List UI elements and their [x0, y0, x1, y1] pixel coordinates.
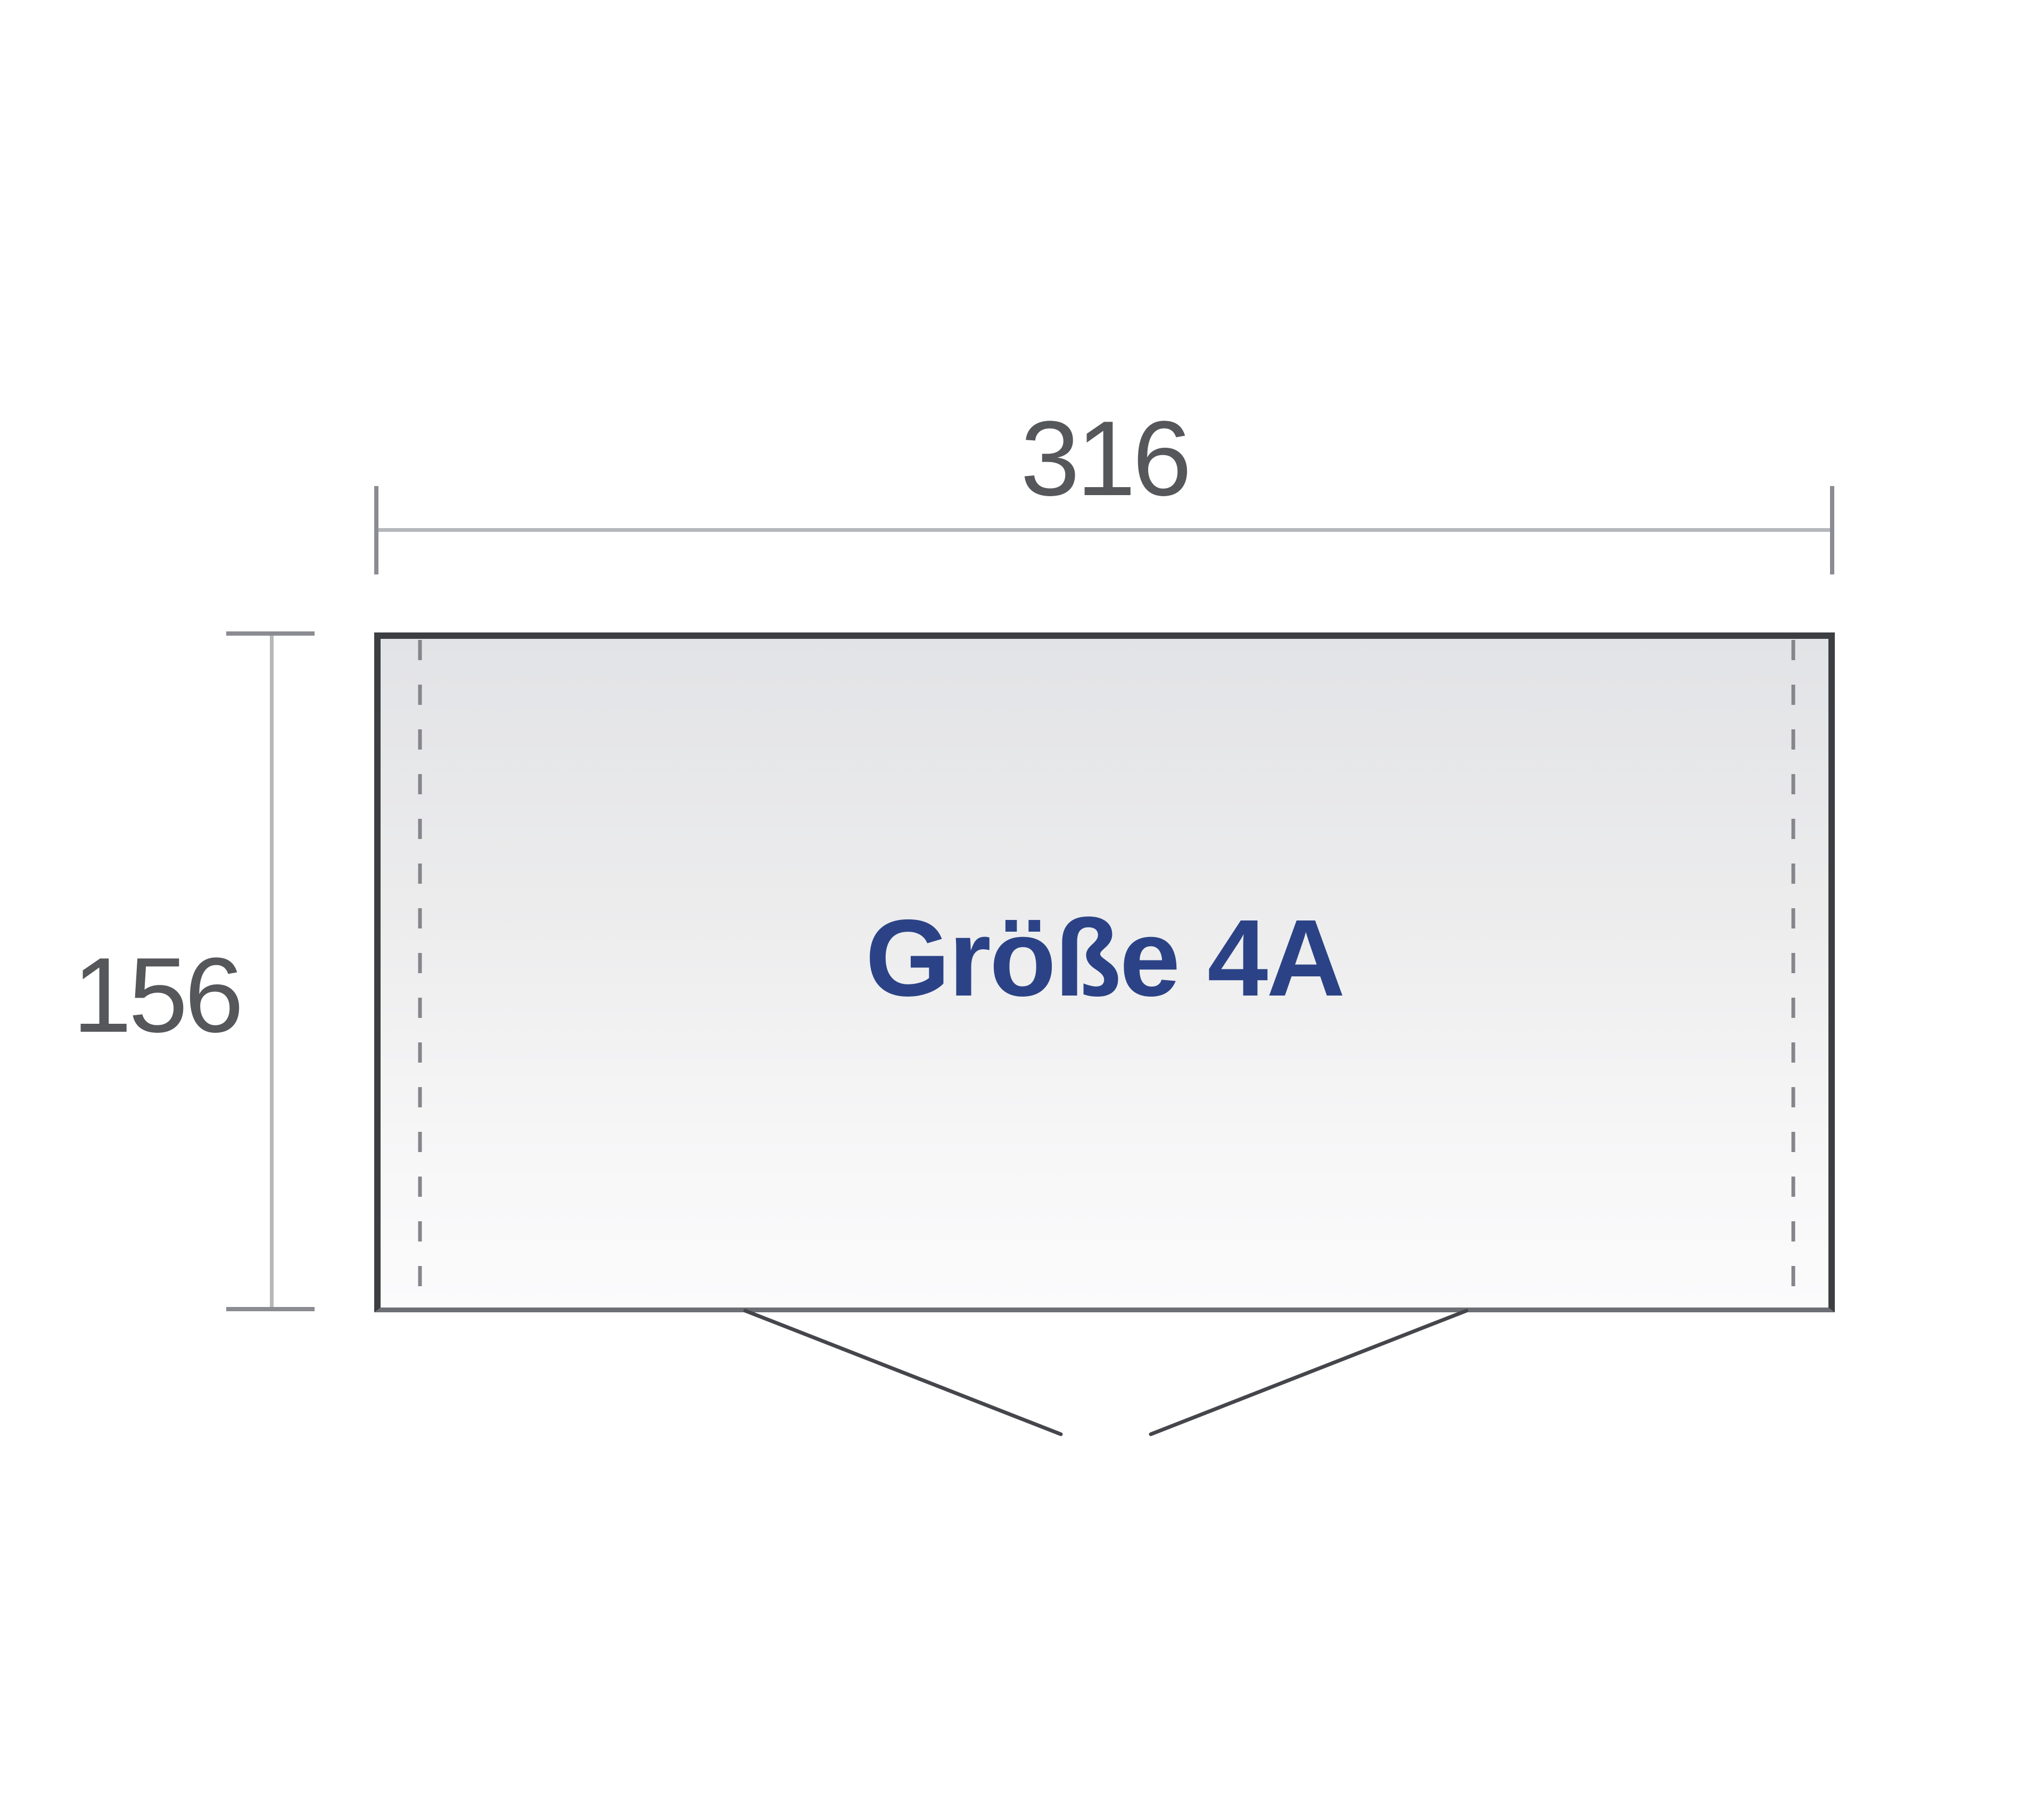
depth-dimension-label: 156: [0, 942, 241, 1049]
door-swing-right-line: [1151, 1311, 1466, 1434]
width-dimension-tick-left: [374, 486, 378, 574]
size-label: Größe 4A: [374, 905, 1835, 1012]
depth-dimension-tick-bottom: [226, 1307, 315, 1311]
floor-plan-diagram: 316 156 Größe 4A: [0, 0, 2044, 1817]
width-dimension-tick-right: [1830, 486, 1834, 574]
width-dimension-label: 316: [892, 406, 1317, 512]
door-swing-left-line: [745, 1311, 1061, 1434]
depth-dimension-tick-top: [226, 631, 315, 636]
depth-dimension-line: [270, 634, 274, 1310]
width-dimension-line: [376, 528, 1833, 532]
